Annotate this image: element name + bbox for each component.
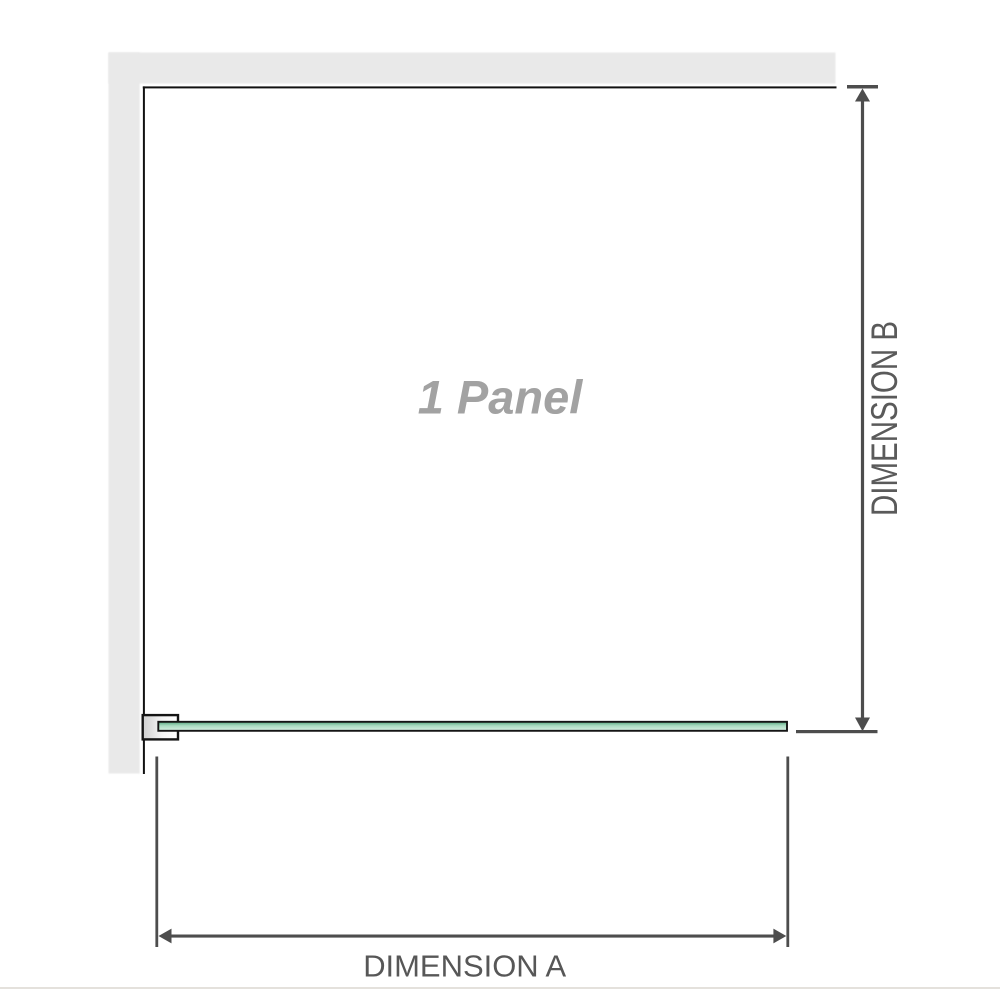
svg-text:DIMENSION A: DIMENSION A bbox=[363, 949, 566, 984]
svg-text:1 Panel: 1 Panel bbox=[418, 371, 584, 424]
svg-text:DIMENSION B: DIMENSION B bbox=[864, 321, 905, 516]
